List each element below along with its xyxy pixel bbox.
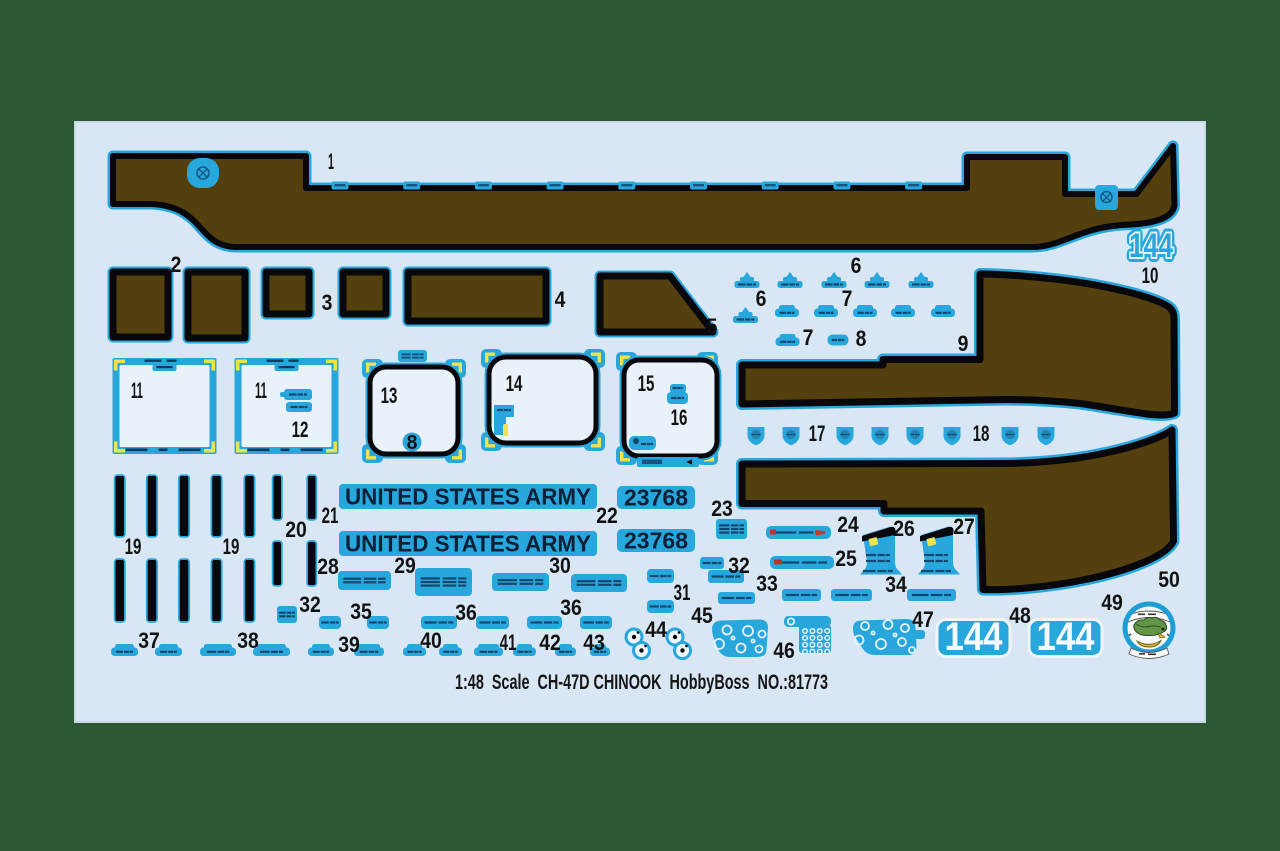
svg-text:33: 33: [756, 571, 778, 596]
svg-text:20: 20: [285, 517, 307, 542]
svg-text:35: 35: [350, 599, 372, 624]
svg-text:12: 12: [292, 417, 309, 442]
svg-text:4: 4: [555, 287, 566, 312]
svg-text:32: 32: [299, 592, 321, 617]
svg-text:36: 36: [560, 595, 582, 620]
svg-text:14: 14: [506, 371, 523, 396]
svg-text:32: 32: [728, 553, 750, 578]
svg-text:16: 16: [671, 405, 688, 430]
svg-text:19: 19: [125, 534, 142, 559]
svg-text:24: 24: [837, 512, 859, 537]
svg-text:22: 22: [596, 503, 618, 528]
svg-text:5: 5: [707, 314, 718, 339]
svg-text:34: 34: [885, 572, 907, 597]
svg-text:8: 8: [407, 432, 418, 454]
svg-text:23: 23: [711, 496, 733, 521]
svg-text:23768: 23768: [624, 528, 688, 554]
svg-text:18: 18: [973, 421, 990, 446]
svg-text:8: 8: [856, 326, 867, 351]
svg-text:2: 2: [171, 252, 182, 277]
svg-text:23768: 23768: [624, 485, 688, 511]
svg-text:144: 144: [1129, 227, 1173, 265]
svg-text:10: 10: [1142, 263, 1159, 288]
svg-text:43: 43: [583, 630, 605, 655]
svg-text:144: 144: [1037, 615, 1096, 659]
svg-text:11: 11: [255, 378, 267, 403]
svg-text:44: 44: [645, 617, 667, 642]
svg-text:50: 50: [1158, 567, 1180, 592]
svg-text:41: 41: [500, 630, 517, 655]
svg-text:1:48 Scale CH-47D CHINOOK H: 1:48 Scale CH-47D CHINOOK HobbyBoss NO.:…: [455, 671, 828, 694]
svg-text:19: 19: [223, 534, 240, 559]
svg-text:7: 7: [803, 325, 814, 350]
svg-text:26: 26: [893, 516, 915, 541]
svg-text:45: 45: [691, 603, 713, 628]
svg-text:11: 11: [131, 378, 143, 403]
svg-text:6: 6: [851, 253, 862, 278]
svg-text:144: 144: [945, 615, 1004, 659]
svg-text:UNITED STATES ARMY: UNITED STATES ARMY: [345, 484, 591, 510]
svg-text:48: 48: [1009, 603, 1031, 628]
svg-text:30: 30: [549, 553, 571, 578]
svg-text:42: 42: [539, 630, 561, 655]
svg-text:46: 46: [773, 638, 795, 663]
svg-text:49: 49: [1101, 590, 1123, 615]
svg-text:6: 6: [756, 286, 767, 311]
svg-text:9: 9: [958, 331, 969, 356]
svg-text:47: 47: [912, 607, 934, 632]
svg-text:37: 37: [138, 628, 160, 653]
svg-text:13: 13: [381, 383, 398, 408]
svg-text:31: 31: [674, 580, 691, 605]
svg-text:27: 27: [953, 514, 975, 539]
svg-text:28: 28: [317, 554, 339, 579]
svg-text:25: 25: [835, 546, 857, 571]
svg-text:1: 1: [328, 149, 334, 174]
svg-text:3: 3: [322, 290, 333, 315]
svg-text:17: 17: [809, 421, 826, 446]
svg-text:7: 7: [842, 286, 853, 311]
svg-text:29: 29: [394, 553, 416, 578]
svg-text:38: 38: [237, 628, 259, 653]
svg-text:36: 36: [455, 600, 477, 625]
svg-text:21: 21: [322, 503, 339, 528]
svg-text:15: 15: [638, 371, 655, 396]
svg-text:40: 40: [420, 628, 442, 653]
svg-text:39: 39: [338, 632, 360, 657]
